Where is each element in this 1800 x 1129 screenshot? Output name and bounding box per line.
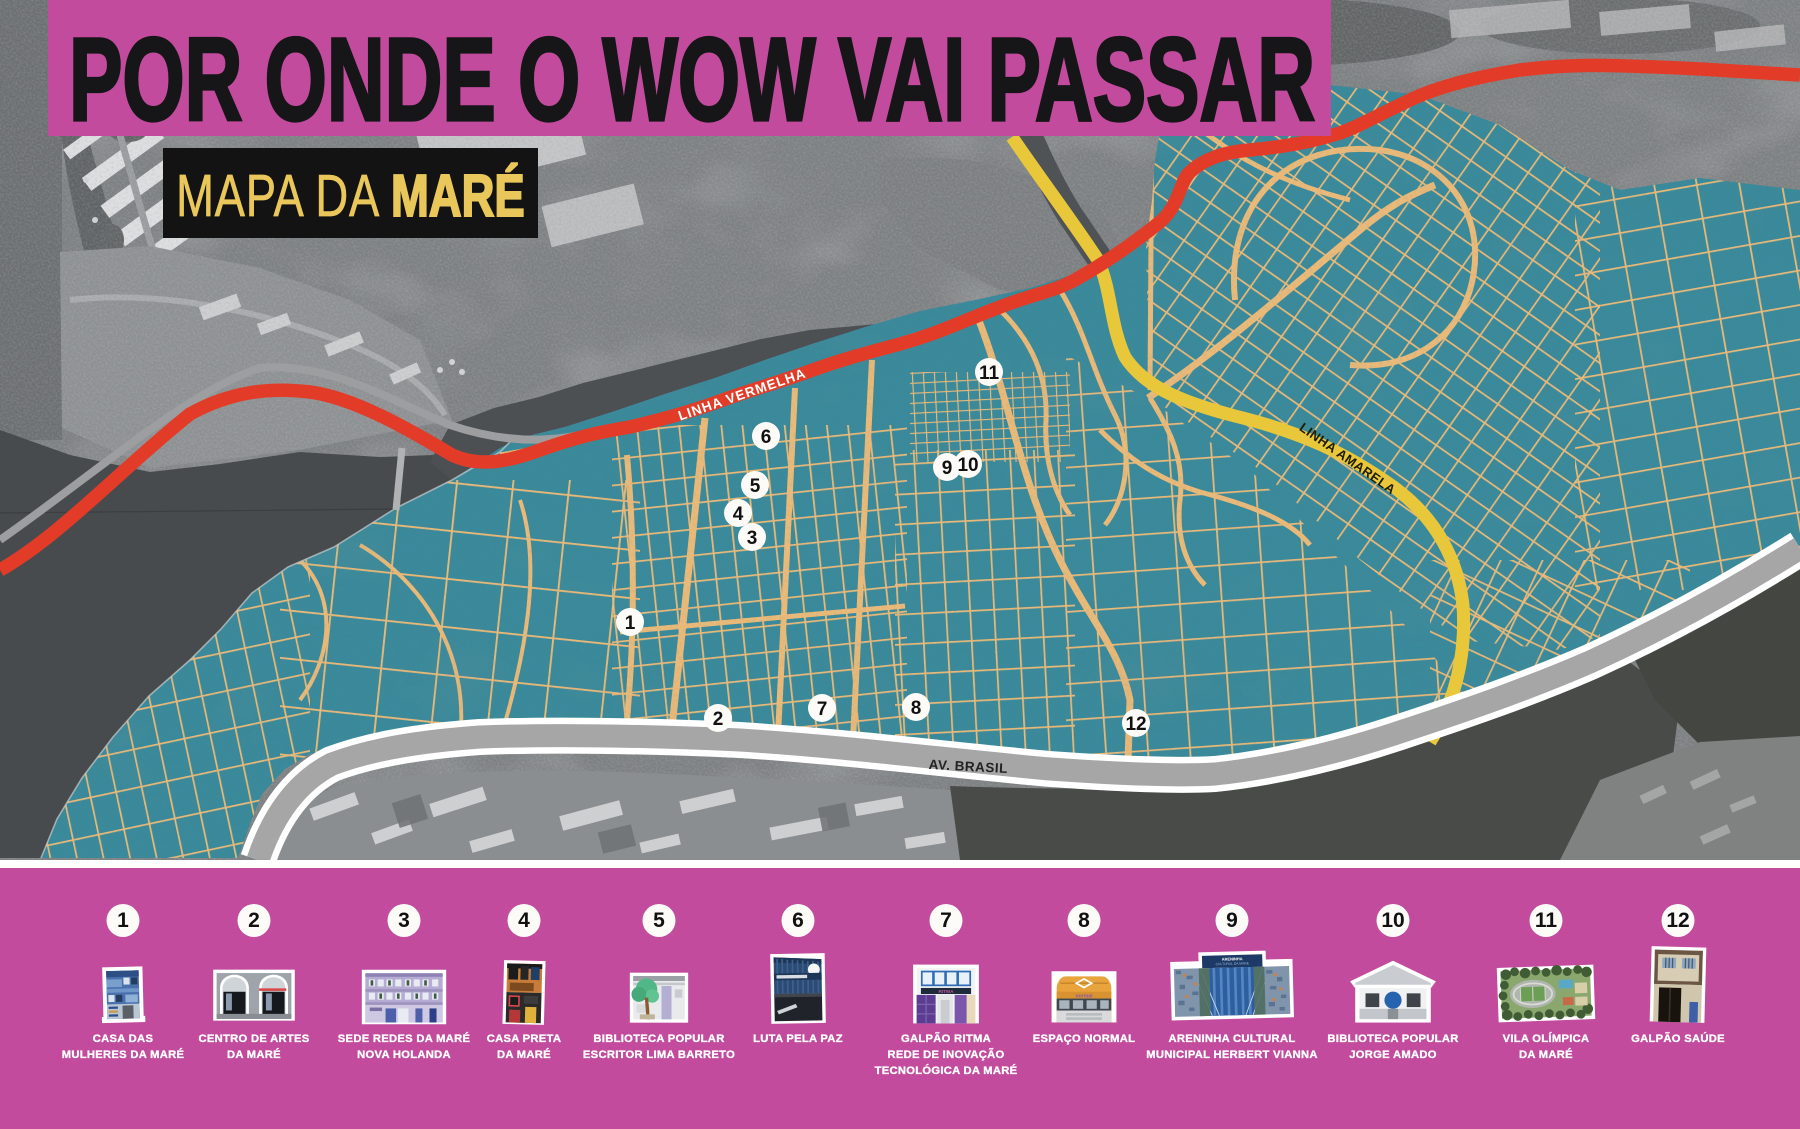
svg-text:RITMA: RITMA bbox=[938, 989, 954, 995]
svg-text:7: 7 bbox=[817, 699, 828, 720]
svg-text:6: 6 bbox=[761, 427, 772, 448]
svg-text:5: 5 bbox=[750, 476, 761, 497]
svg-text:10: 10 bbox=[957, 455, 978, 476]
svg-text:11: 11 bbox=[979, 363, 1000, 384]
svg-text:12: 12 bbox=[1125, 714, 1146, 735]
svg-text:1: 1 bbox=[625, 613, 636, 634]
svg-text:8: 8 bbox=[911, 698, 922, 719]
svg-text:3: 3 bbox=[747, 528, 758, 549]
svg-text:4: 4 bbox=[733, 504, 744, 525]
svg-text:2: 2 bbox=[713, 709, 724, 730]
svg-text:9: 9 bbox=[942, 458, 953, 479]
